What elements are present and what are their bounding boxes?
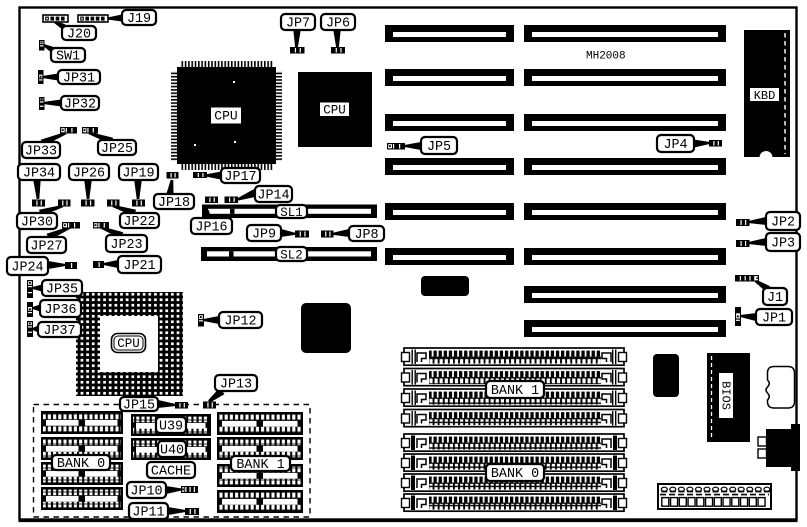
svg-text:JP3: JP3 — [771, 236, 795, 251]
svg-text:BANK 1: BANK 1 — [236, 458, 284, 473]
svg-text:JP11: JP11 — [132, 505, 164, 520]
svg-text:JP21: JP21 — [123, 259, 155, 274]
svg-text:U39: U39 — [159, 419, 183, 434]
svg-text:JP35: JP35 — [46, 282, 78, 297]
svg-text:JP5: JP5 — [427, 140, 451, 155]
svg-text:JP18: JP18 — [158, 196, 190, 211]
svg-text:JP22: JP22 — [123, 215, 155, 230]
svg-text:JP30: JP30 — [21, 215, 53, 230]
svg-text:JP8: JP8 — [354, 228, 378, 243]
svg-text:J19: J19 — [127, 12, 151, 27]
svg-text:JP13: JP13 — [220, 377, 252, 392]
svg-text:JP33: JP33 — [25, 144, 57, 159]
svg-text:JP26: JP26 — [73, 166, 105, 181]
svg-text:JP7: JP7 — [286, 16, 310, 31]
svg-text:JP6: JP6 — [326, 16, 350, 31]
svg-text:CPU: CPU — [214, 109, 237, 124]
svg-text:BANK 0: BANK 0 — [57, 457, 105, 472]
svg-text:SW1: SW1 — [56, 49, 80, 64]
svg-text:JP25: JP25 — [101, 142, 133, 157]
svg-text:JP16: JP16 — [195, 220, 227, 235]
svg-text:JP37: JP37 — [43, 324, 75, 339]
svg-text:JP10: JP10 — [130, 484, 162, 499]
svg-text:SL2: SL2 — [280, 248, 303, 262]
svg-text:JP31: JP31 — [63, 71, 95, 86]
svg-text:JP1: JP1 — [762, 311, 786, 326]
svg-text:J20: J20 — [67, 27, 91, 42]
svg-text:JP2: JP2 — [771, 215, 795, 230]
svg-text:JP9: JP9 — [252, 227, 276, 242]
svg-text:CPU: CPU — [117, 337, 140, 351]
svg-text:JP36: JP36 — [44, 303, 76, 318]
svg-text:JP15: JP15 — [123, 398, 155, 413]
svg-text:BIOS: BIOS — [719, 381, 733, 410]
svg-text:JP19: JP19 — [122, 166, 154, 181]
svg-text:SL1: SL1 — [280, 206, 303, 220]
svg-text:J1: J1 — [767, 291, 783, 306]
svg-text:MH2008: MH2008 — [586, 51, 626, 63]
svg-text:JP34: JP34 — [23, 166, 55, 181]
svg-text:JP12: JP12 — [224, 314, 256, 329]
svg-text:KBD: KBD — [754, 89, 776, 103]
svg-text:JP27: JP27 — [30, 239, 62, 254]
svg-text:BANK 1: BANK 1 — [491, 384, 539, 399]
svg-text:U40: U40 — [160, 443, 184, 458]
svg-text:JP23: JP23 — [110, 238, 142, 253]
svg-text:JP4: JP4 — [663, 138, 687, 153]
svg-text:BANK 0: BANK 0 — [491, 467, 539, 482]
svg-text:JP24: JP24 — [11, 260, 43, 275]
svg-text:CPU: CPU — [323, 104, 346, 118]
svg-text:CACHE: CACHE — [151, 464, 191, 479]
svg-text:JP32: JP32 — [64, 97, 96, 112]
svg-text:JP17: JP17 — [224, 170, 256, 185]
svg-text:JP14: JP14 — [257, 188, 289, 203]
